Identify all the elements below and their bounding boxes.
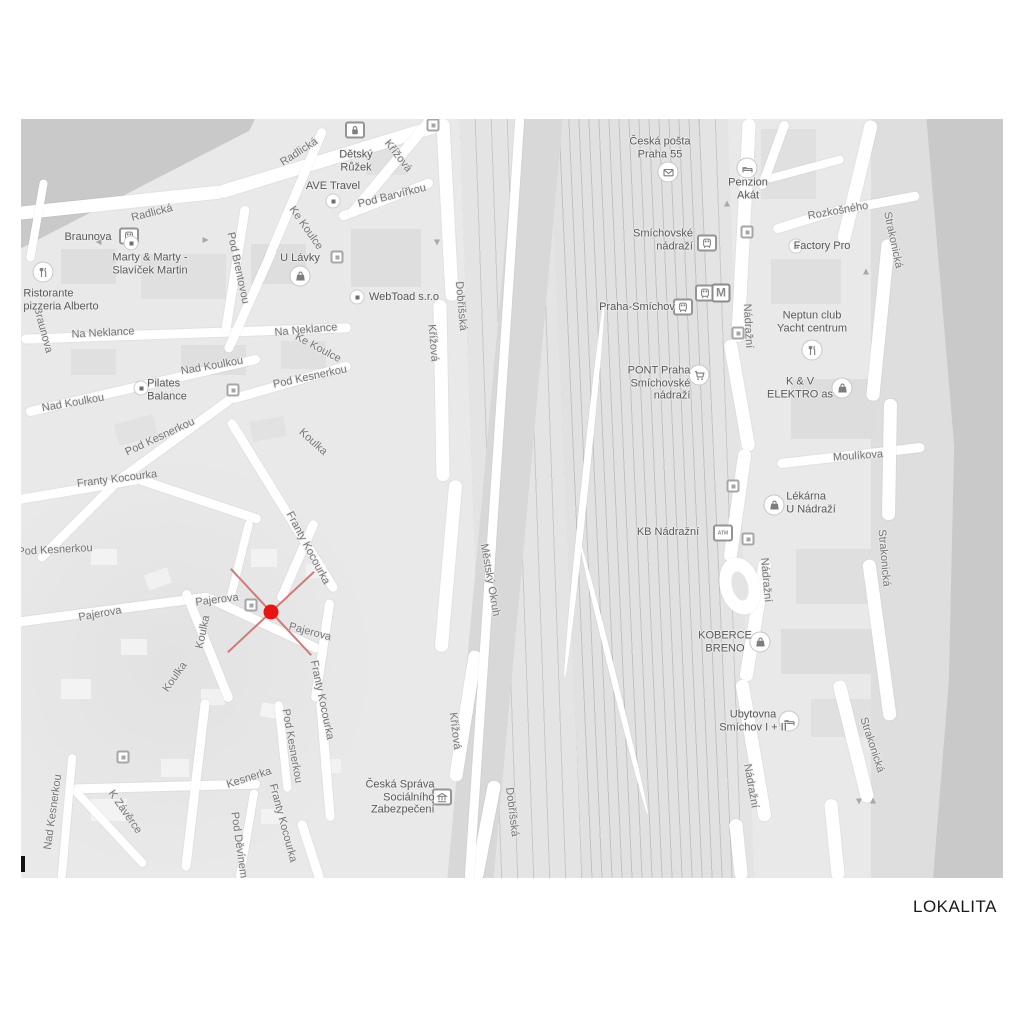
train-icon: [673, 299, 693, 316]
street-label: Nad Koulkou: [41, 392, 105, 415]
building: [71, 349, 116, 375]
poi-label: PenzionAkát: [728, 177, 768, 202]
map-image: Radlická Radlická Braunova Na Neklance N…: [21, 119, 1003, 878]
transit-stop-icon: [245, 599, 258, 612]
poi-label: Braunova: [64, 231, 111, 244]
building: [61, 679, 91, 699]
poi-label: Smíchovskénádraží: [633, 228, 693, 253]
street-label: Nádražní: [758, 557, 774, 603]
poi-dot-icon: [350, 290, 365, 305]
scale-tick: [21, 856, 25, 872]
train-icon: [697, 235, 717, 252]
poi-label: Praha-Smíchov: [599, 301, 675, 314]
poi-label: PilatesBalance: [147, 378, 187, 403]
street-label: Rozkošného: [807, 200, 869, 222]
bank-icon: [432, 789, 452, 806]
road-krizova: [435, 480, 463, 652]
poi-label: KB Nádražní: [637, 526, 699, 539]
poi-label: U Lávky: [280, 252, 320, 265]
poi-label: Factory Pro: [794, 240, 851, 253]
poi-label: Česká poštaPraha 55: [629, 136, 690, 161]
transit-stop-icon: [741, 226, 754, 239]
oneway-arrow-icon: [863, 266, 869, 275]
poi-dot-icon: [326, 194, 341, 209]
transit-stop-icon: [427, 119, 440, 132]
atm-icon: ATM: [713, 525, 733, 542]
building: [771, 259, 841, 304]
oneway-arrow-icon: [856, 799, 862, 808]
transit-stop-icon: [732, 327, 745, 340]
building: [161, 759, 189, 777]
road-strakonicka: [824, 799, 845, 878]
envelope-icon: [658, 162, 679, 183]
poi-label: AVE Travel: [306, 180, 360, 193]
poi-label: LékárnaU Nádraží: [786, 491, 836, 516]
building: [91, 549, 117, 565]
poi-label: Marty & Marty -Slavíček Martin: [112, 252, 187, 277]
restaurant-icon: [33, 262, 54, 283]
poi-label: DětskýRůžek: [339, 149, 373, 174]
building: [251, 549, 277, 567]
bag-icon: [290, 266, 311, 287]
road-strakonicka: [882, 399, 897, 520]
oneway-arrow-icon: [434, 240, 440, 249]
poi-label: Ristorantepizzeria Alberto: [23, 288, 98, 313]
poi-label: KOBERCEBRENO: [698, 630, 752, 655]
transit-stop-icon: [227, 384, 240, 397]
building: [121, 639, 147, 655]
road-krizova: [436, 119, 459, 301]
poi-label: Neptun clubYacht centrum: [777, 310, 847, 335]
bed-icon: [737, 158, 758, 179]
building: [250, 416, 287, 442]
metro-icon: M: [712, 284, 731, 303]
cart-icon: [689, 365, 710, 386]
poi-dot-icon: [124, 236, 139, 251]
transit-stop-icon: [331, 251, 344, 264]
restaurant-icon: [802, 340, 823, 361]
transit-stop-icon: [742, 533, 755, 546]
caption-lokalita: LOKALITA: [913, 897, 997, 917]
poi-label: K & VELEKTRO as: [767, 376, 833, 401]
building: [61, 249, 116, 284]
bag-icon: [832, 378, 853, 399]
transit-stop-icon: [727, 480, 740, 493]
poi-label: PONT PrahaSmíchovskénádraží: [628, 364, 691, 402]
poi-label: UbytovnaSmíchov I + II: [719, 709, 787, 734]
location-marker: [264, 605, 279, 620]
bag-icon: [750, 632, 771, 653]
transit-stop-icon: [117, 751, 130, 764]
oneway-arrow-icon: [203, 237, 212, 243]
building: [781, 629, 871, 674]
poi-label: Česká SprávaSociálníhoZabezpečení: [365, 778, 434, 816]
oneway-arrow-icon: [870, 795, 876, 804]
lock-icon: [345, 122, 365, 139]
building: [351, 229, 421, 287]
bag-icon: [764, 495, 785, 516]
street-label: Braunova: [31, 306, 55, 355]
poi-label: WebToad s.r.o: [369, 291, 439, 304]
